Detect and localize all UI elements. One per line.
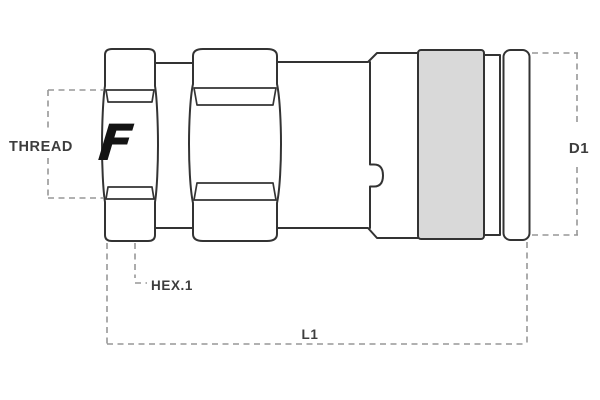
thread-dimension: THREAD (9, 90, 104, 198)
d1-label: D1 (569, 140, 589, 157)
hex1-dimension: HEX.1 (135, 243, 193, 293)
thread-label: THREAD (9, 139, 73, 155)
technical-drawing-page: F THREAD HEX.1 L1 D1 (0, 0, 600, 400)
hex1-label: HEX.1 (151, 278, 193, 293)
thread-nut: F (96, 49, 158, 241)
locking-sleeve (418, 50, 484, 239)
hex1-leader-line (135, 243, 147, 283)
end-cap (504, 50, 530, 240)
body-hex-silhouette (189, 49, 281, 241)
l1-dimension: L1 (107, 242, 527, 344)
retaining-ring (484, 55, 500, 235)
body-top-line (276, 53, 418, 62)
d1-dimension: D1 (532, 53, 589, 235)
brand-logo-f: F (96, 113, 136, 172)
l1-label: L1 (302, 327, 319, 342)
body-hex-nut (189, 49, 281, 241)
coupling-technical-drawing: F THREAD HEX.1 L1 D1 (0, 0, 600, 400)
body-bottom-line (276, 228, 418, 238)
body-step-notch (370, 62, 383, 228)
